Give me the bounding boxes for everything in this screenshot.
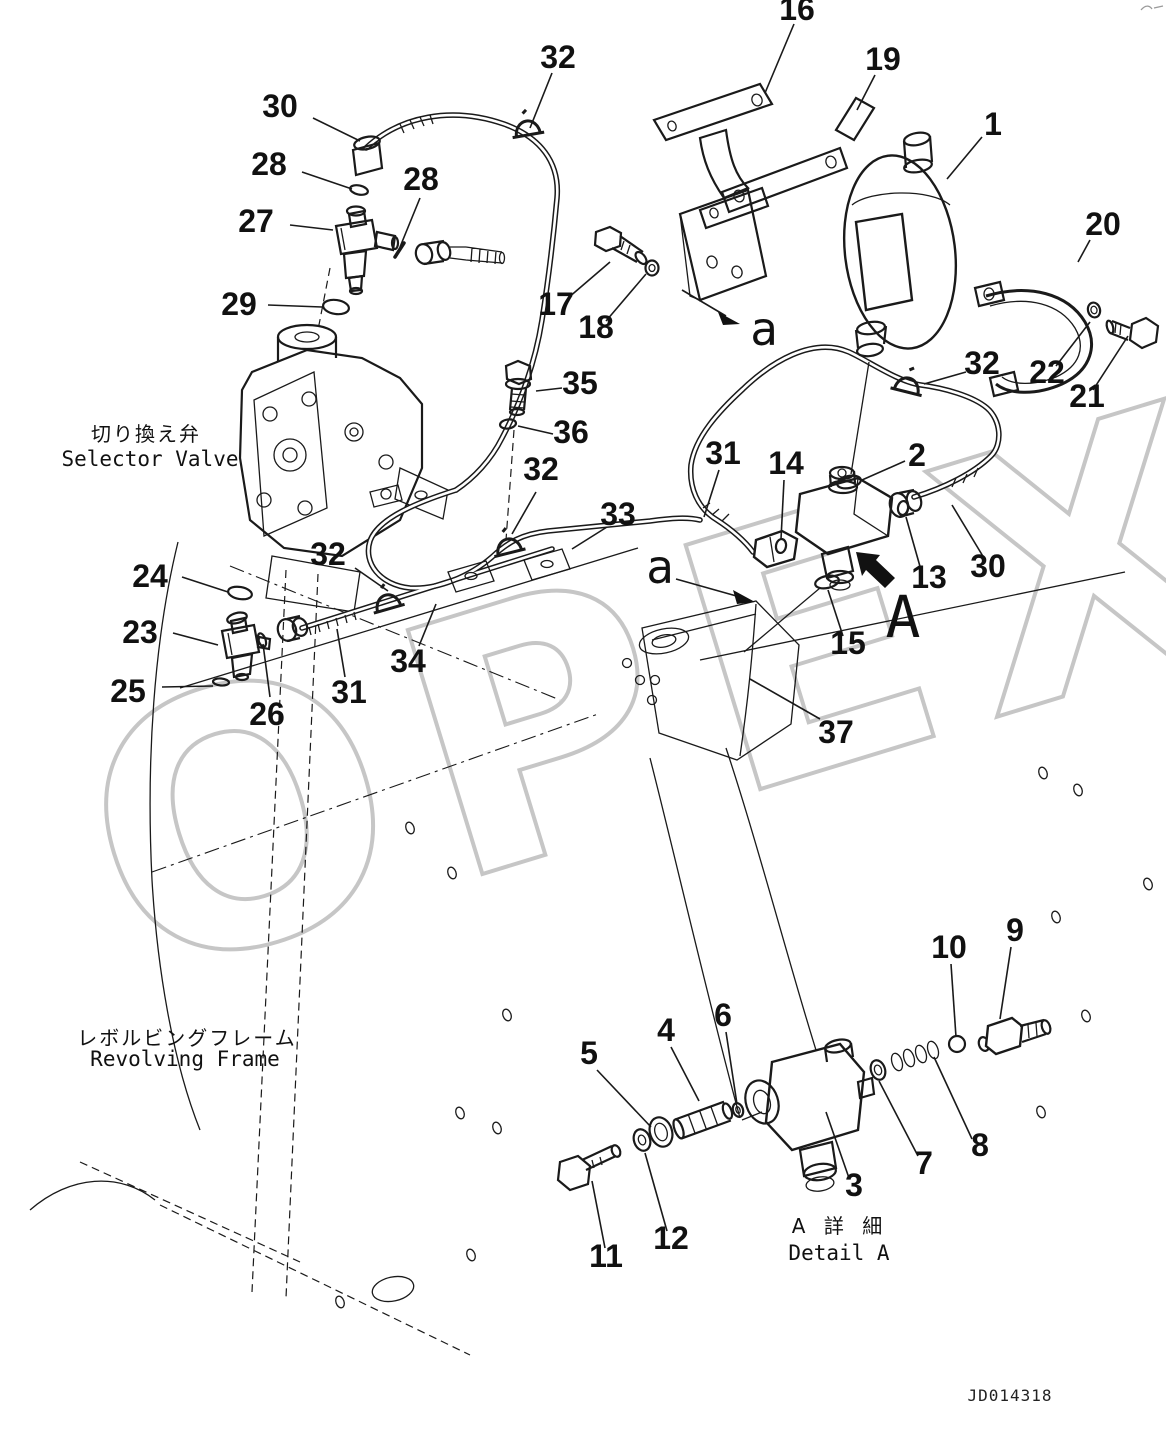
drawing-number: JD014318 [967, 1386, 1052, 1405]
callout-31: 31 [705, 435, 741, 471]
callout-22: 22 [1029, 354, 1065, 390]
callout-3: 3 [845, 1167, 863, 1203]
ball-10 [949, 1036, 965, 1052]
callout-29: 29 [221, 286, 257, 322]
callout-5: 5 [580, 1035, 598, 1071]
frame-curve [30, 1181, 155, 1210]
leader-line-16 [765, 24, 794, 93]
callout-25: 25 [110, 673, 146, 709]
callout-19: 19 [865, 41, 901, 77]
leader-line-29 [268, 305, 322, 307]
callout-37: 37 [818, 714, 854, 750]
callout-23: 23 [122, 614, 158, 650]
leader-line-4 [671, 1047, 699, 1101]
leader-line-28 [400, 198, 420, 247]
callout-32: 32 [964, 345, 1000, 381]
caption-detail-a-en: Detail A [788, 1241, 890, 1265]
leader-line-6 [726, 1032, 737, 1104]
callout-32: 32 [540, 39, 576, 75]
callout-8: 8 [971, 1127, 989, 1163]
callout-30: 30 [262, 88, 298, 124]
pin-28 [395, 243, 404, 257]
leader-line-36 [518, 426, 553, 434]
callout-34: 34 [390, 643, 426, 679]
callout-27: 27 [238, 203, 274, 239]
washer-22 [1086, 301, 1101, 319]
leader-line-7 [879, 1081, 918, 1156]
view-label-A: A [886, 583, 921, 651]
pipe-core [366, 115, 557, 490]
callout-17: 17 [538, 286, 574, 322]
parts-diagram-page: OPEX [0, 0, 1166, 1436]
callout-2: 2 [908, 437, 926, 473]
leader-line-5 [597, 1070, 651, 1127]
callout-32: 32 [310, 536, 346, 572]
callout-36: 36 [553, 414, 589, 450]
frame-hidden-lines [80, 1162, 470, 1355]
callout-18: 18 [578, 309, 614, 345]
callout-28: 28 [403, 161, 439, 197]
o-ring-28 [349, 184, 368, 197]
bracket-16 [654, 84, 772, 300]
parts-diagram-canvas: OPEX [0, 0, 1166, 1436]
o-ring-29 [322, 298, 350, 315]
callout-12: 12 [653, 1220, 689, 1256]
callout-21: 21 [1069, 378, 1105, 414]
leader-line-30 [313, 118, 360, 141]
plug-4 [671, 1100, 734, 1139]
callout-26: 26 [249, 696, 285, 732]
leader-line-24 [182, 577, 228, 592]
callout-31: 31 [331, 674, 367, 710]
view-label-a-top: a [750, 302, 778, 356]
callout-9: 9 [1006, 912, 1024, 948]
callout-24: 24 [132, 558, 168, 594]
callout-7: 7 [915, 1145, 933, 1181]
leader-line-8 [934, 1057, 972, 1139]
callout-32: 32 [523, 451, 559, 487]
leader-line-28 [302, 172, 352, 189]
pipe-30-top [366, 115, 557, 490]
view-label-a-mid: a [646, 540, 674, 594]
callout-16: 16 [779, 0, 815, 27]
bolt-11 [558, 1144, 622, 1190]
caption-revolving-frame-en: Revolving Frame [90, 1047, 280, 1071]
callout-35: 35 [562, 365, 598, 401]
leader-line-20 [1078, 240, 1090, 262]
leader-line-10 [951, 964, 956, 1037]
leader-line-25 [162, 686, 213, 687]
callout-28: 28 [251, 146, 287, 182]
leader-line-9 [1000, 947, 1011, 1019]
callout-33: 33 [600, 496, 636, 532]
callout-20: 20 [1085, 206, 1121, 242]
callout-11: 11 [589, 1238, 623, 1274]
spring-8 [889, 1040, 940, 1072]
washer-18 [646, 261, 659, 276]
callout-1: 1 [984, 106, 1002, 142]
frame-hole [370, 1273, 416, 1305]
leader-line-35 [536, 388, 562, 391]
detail-a-parts [558, 1018, 1052, 1193]
caption-selector-valve-en: Selector Valve [61, 447, 238, 471]
callout-15: 15 [830, 625, 866, 661]
leader-line-32 [530, 73, 552, 128]
leader-line-17 [568, 262, 610, 298]
corner-mark [1141, 6, 1163, 10]
leader-line-27 [290, 225, 333, 230]
caption-selector-valve-jp: 切り換え弁 [91, 422, 201, 446]
fitting-27 [336, 207, 398, 295]
leader-line-1 [947, 137, 982, 179]
leader-line-32 [924, 372, 966, 384]
bolt-17 [595, 227, 649, 266]
callout-10: 10 [931, 929, 967, 965]
callout-30: 30 [970, 548, 1006, 584]
callout-14: 14 [768, 445, 804, 481]
bolt-unlabeled [414, 241, 505, 266]
caption-detail-a-jp: A 詳 細 [792, 1214, 888, 1238]
o-ring-24 [227, 585, 253, 601]
callout-6: 6 [714, 997, 732, 1033]
callout-4: 4 [657, 1012, 675, 1048]
fitting-9 [977, 1018, 1052, 1054]
